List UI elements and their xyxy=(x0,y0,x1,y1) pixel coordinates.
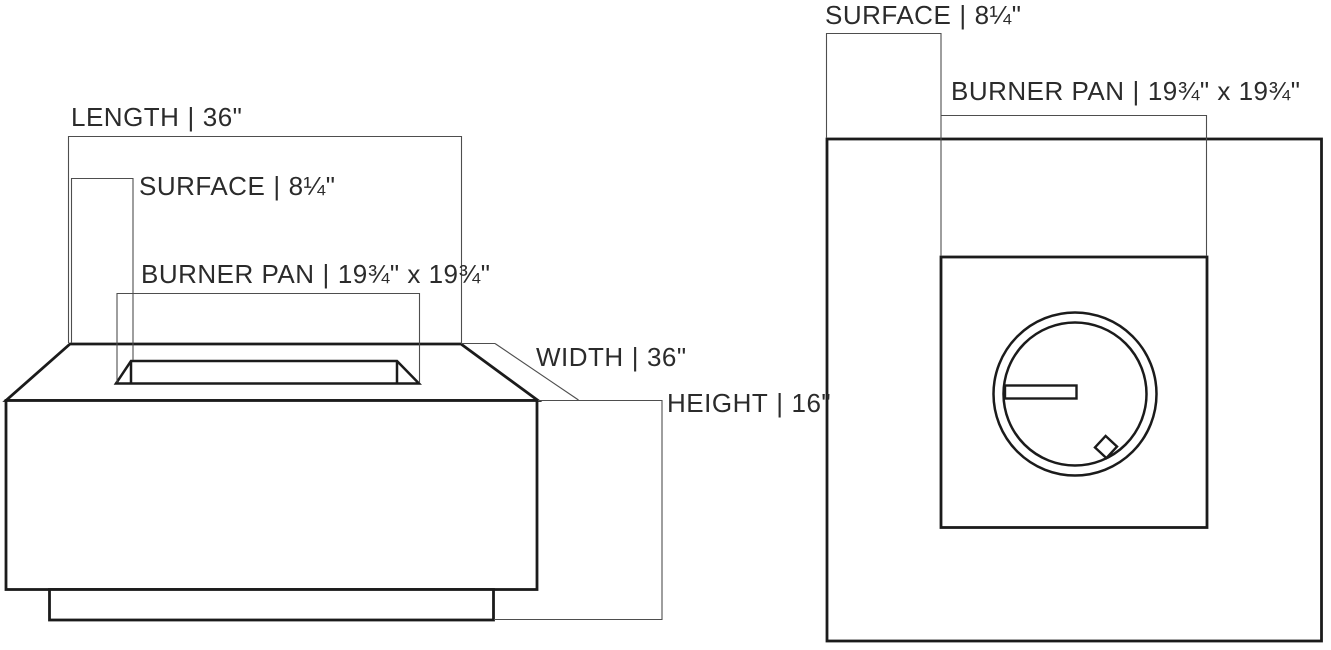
surface-label-front: SURFACE|8¼" xyxy=(139,172,335,200)
width-label: WIDTH|36" xyxy=(536,343,687,371)
label-separator: | xyxy=(1133,76,1140,106)
label-separator: | xyxy=(632,342,639,372)
surface-dimension-bracket xyxy=(72,179,134,361)
tabletop-front-face xyxy=(6,401,537,590)
label-text: BURNER PAN xyxy=(951,76,1125,106)
label-text: BURNER PAN xyxy=(141,259,315,289)
label-text: WIDTH xyxy=(536,342,624,372)
label-separator: | xyxy=(776,388,783,418)
burner-opening xyxy=(116,361,419,384)
burner-pan-label-top: BURNER PAN|19¾" x 19¾" xyxy=(951,77,1300,105)
label-value: 36" xyxy=(647,342,687,372)
label-value: 16" xyxy=(792,388,832,418)
label-separator: | xyxy=(273,171,280,201)
label-value: 19¾" x 19¾" xyxy=(1148,76,1301,106)
burner-inlet-slot xyxy=(1005,386,1077,399)
label-value: 19¾" x 19¾" xyxy=(338,259,491,289)
label-separator: | xyxy=(187,102,194,132)
length-label: LENGTH|36" xyxy=(71,103,242,131)
tabletop-base xyxy=(50,590,494,621)
label-value: 36" xyxy=(203,102,243,132)
front-view xyxy=(6,137,662,621)
label-text: SURFACE xyxy=(825,0,951,30)
label-text: LENGTH xyxy=(71,102,179,132)
label-value: 8¼" xyxy=(975,0,1022,30)
label-separator: | xyxy=(959,0,966,30)
label-text: HEIGHT xyxy=(667,388,768,418)
label-separator: | xyxy=(323,259,330,289)
label-text: SURFACE xyxy=(139,171,265,201)
height-label: HEIGHT|16" xyxy=(667,389,831,417)
burner-pan-label-front: BURNER PAN|19¾" x 19¾" xyxy=(141,260,490,288)
diagram-canvas: LENGTH|36" SURFACE|8¼" BURNER PAN|19¾" x… xyxy=(0,0,1331,650)
length-dimension-bracket xyxy=(69,137,462,344)
top-view xyxy=(827,34,1322,642)
label-value: 8¼" xyxy=(289,171,336,201)
surface-label-top: SURFACE|8¼" xyxy=(825,1,1021,29)
